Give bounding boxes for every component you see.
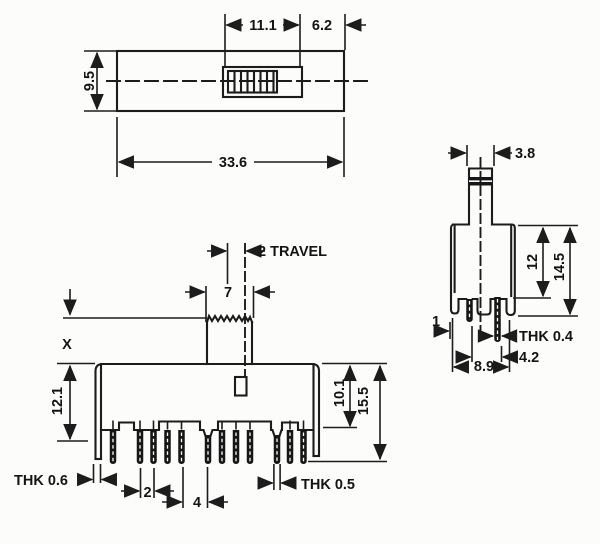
dim-pin-pitch: 2 xyxy=(143,485,151,501)
dim-group-pitch: 4 xyxy=(193,495,201,511)
dim-side-body-width: 8.9 xyxy=(474,359,494,375)
slide-switch-dimension-drawing: 11.1 6.2 9.5 33.6 xyxy=(0,0,600,544)
front-view-base-edge xyxy=(101,422,314,437)
drawing-canvas: 11.1 6.2 9.5 33.6 xyxy=(0,0,600,544)
dim-knob-offset: 6.2 xyxy=(312,18,332,34)
dim-top-length: 33.6 xyxy=(219,155,247,171)
dim-terminal-offset: 4.2 xyxy=(519,350,539,366)
dim-top-height: 9.5 xyxy=(82,71,98,91)
front-view: 2 TRAVEL 7 X 12.1 THK 0.6 2 4 xyxy=(14,243,387,511)
side-view-center-channel xyxy=(473,299,495,315)
front-view-pin-stubs xyxy=(113,421,304,430)
dim-leg-thickness: THK 0.6 xyxy=(14,473,68,489)
dim-body-height: 12.1 xyxy=(50,387,66,415)
dim-total-height: 15.5 xyxy=(356,387,372,415)
dim-actuator-height: X xyxy=(62,337,72,353)
dim-knob-width: 11.1 xyxy=(249,18,276,34)
dim-actuator-width: 7 xyxy=(224,285,232,301)
dim-contact-thickness: THK 0.4 xyxy=(519,329,573,345)
front-view-hole xyxy=(235,377,247,396)
side-view: 3.8 12 14.5 1 THK 0.4 4.2 8.9 xyxy=(432,145,578,375)
top-view-knob-ribs xyxy=(235,71,274,93)
dim-body-to-seat: 10.1 xyxy=(332,379,348,407)
dim-side-actuator-width: 3.8 xyxy=(515,146,535,162)
dim-bracket-thickness: 1 xyxy=(432,314,440,330)
dim-travel: 2 TRAVEL xyxy=(258,244,327,260)
side-view-left-bracket xyxy=(451,225,466,314)
dim-side-total-height: 14.5 xyxy=(552,253,568,281)
dim-pin-thickness: THK 0.5 xyxy=(301,477,355,493)
top-view: 11.1 6.2 9.5 33.6 xyxy=(82,14,367,177)
dim-side-body-height: 12 xyxy=(525,254,541,270)
